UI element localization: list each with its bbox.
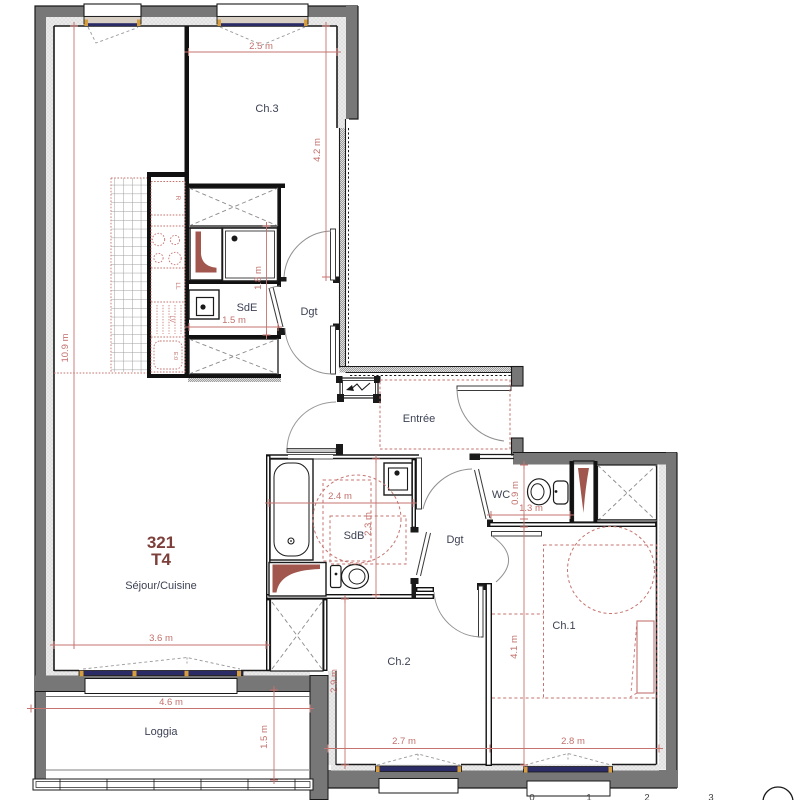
svg-text:Loggia: Loggia [144, 726, 178, 738]
svg-text:LL: LL [174, 282, 181, 290]
svg-text:Ch.3: Ch.3 [255, 103, 278, 115]
svg-text:Dgt: Dgt [300, 306, 317, 318]
svg-text:0: 0 [529, 793, 534, 800]
svg-text:2.5 m: 2.5 m [249, 41, 273, 52]
svg-text:2.4 m: 2.4 m [328, 491, 352, 502]
svg-text:2.3 m: 2.3 m [363, 512, 374, 536]
svg-text:Ch.1: Ch.1 [552, 620, 575, 632]
svg-text:Ch.2: Ch.2 [387, 656, 410, 668]
svg-text:1.3 m: 1.3 m [519, 503, 543, 514]
svg-text:SdE: SdE [237, 302, 258, 314]
svg-text:0.9 m: 0.9 m [510, 481, 521, 505]
svg-text:10.9 m: 10.9 m [60, 333, 71, 362]
svg-text:4.1 m: 4.1 m [509, 635, 520, 659]
svg-text:3.6 m: 3.6 m [149, 633, 173, 644]
svg-text:1.8 m: 1.8 m [253, 266, 264, 290]
svg-text:SdB: SdB [344, 530, 365, 542]
svg-text:WC: WC [492, 489, 510, 501]
svg-text:2: 2 [644, 793, 649, 800]
svg-text:4.6 m: 4.6 m [159, 697, 183, 708]
svg-text:Séjour/Cuisine: Séjour/Cuisine [125, 580, 197, 592]
svg-text:2.8 m: 2.8 m [561, 736, 585, 747]
svg-text:1.5 m: 1.5 m [222, 315, 246, 326]
svg-text:3: 3 [708, 793, 713, 800]
svg-text:4.2 m: 4.2 m [312, 138, 323, 162]
svg-text:T4: T4 [151, 550, 171, 569]
svg-text:2.7 m: 2.7 m [392, 736, 416, 747]
svg-text:2.9 m: 2.9 m [329, 669, 340, 693]
svg-text:1: 1 [586, 793, 591, 800]
svg-text:R: R [174, 196, 181, 201]
svg-text:Entrée: Entrée [403, 413, 435, 425]
svg-text:E:0: E:0 [172, 352, 178, 360]
svg-text:1.5 m: 1.5 m [259, 725, 270, 749]
svg-text:Dgt: Dgt [446, 534, 463, 546]
